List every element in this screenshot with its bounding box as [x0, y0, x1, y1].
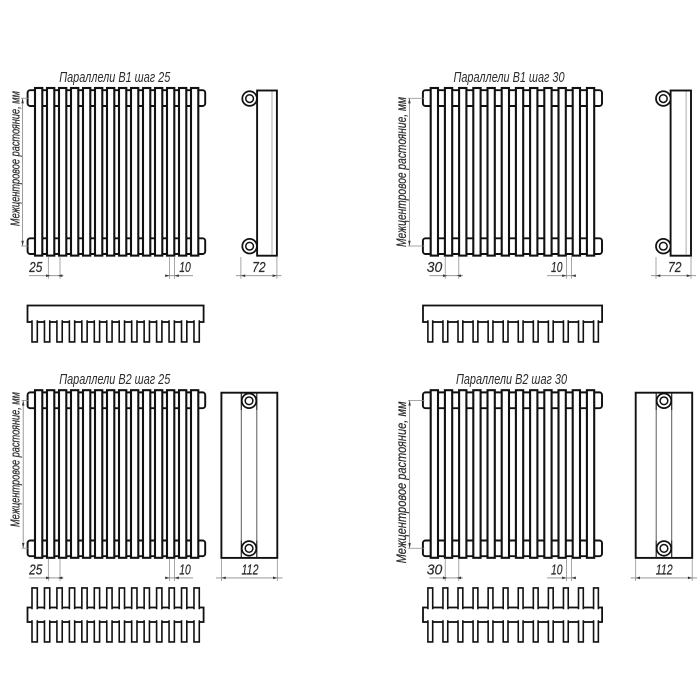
- svg-text:10: 10: [179, 562, 191, 578]
- svg-text:Межцентровое растояние, мм: Межцентровое растояние, мм: [8, 392, 23, 527]
- svg-text:Межцентровое растояние, мм: Межцентровое растояние, мм: [394, 96, 409, 247]
- svg-text:Параллели В1 шаг 30: Параллели В1 шаг 30: [454, 70, 566, 86]
- svg-text:25: 25: [28, 562, 43, 578]
- svg-text:112: 112: [242, 562, 259, 578]
- svg-text:10: 10: [551, 562, 563, 578]
- svg-text:25: 25: [28, 260, 43, 276]
- svg-text:10: 10: [551, 260, 563, 276]
- svg-text:30: 30: [427, 260, 443, 276]
- svg-text:Параллели В2 шаг 25: Параллели В2 шаг 25: [59, 372, 171, 388]
- svg-text:Параллели В2 шаг 30: Параллели В2 шаг 30: [456, 372, 568, 388]
- svg-text:72: 72: [252, 260, 266, 276]
- svg-text:112: 112: [656, 562, 673, 578]
- svg-text:Параллели В1 шаг 25: Параллели В1 шаг 25: [59, 70, 171, 86]
- svg-text:72: 72: [668, 260, 682, 276]
- svg-text:10: 10: [179, 260, 191, 276]
- svg-text:30: 30: [427, 562, 443, 578]
- svg-text:Межцентровое растояние, мм: Межцентровое растояние, мм: [394, 401, 409, 563]
- svg-text:Межцентровое растояние, мм: Межцентровое растояние, мм: [8, 91, 23, 226]
